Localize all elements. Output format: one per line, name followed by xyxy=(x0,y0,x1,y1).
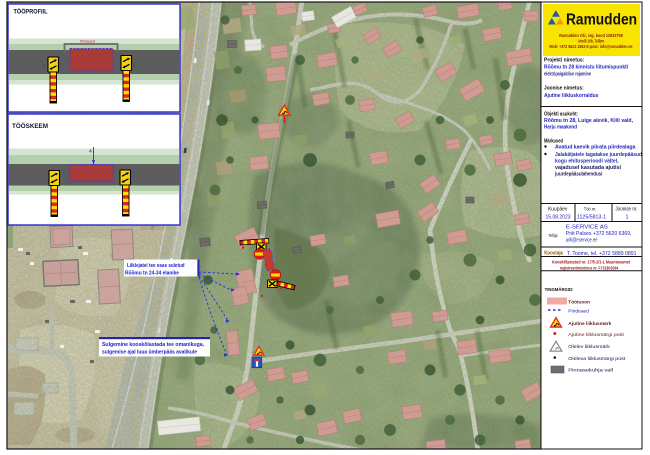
svg-text:Ajutine liikluskorraldus: Ajutine liikluskorraldus xyxy=(544,93,598,99)
svg-text:vajadusel kasutada ajutisi: vajadusel kasutada ajutisi xyxy=(555,165,622,171)
svg-text:Avatud kaevik piirata piirdeal: Avatud kaevik piirata piirdealaga xyxy=(555,145,636,151)
svg-text:Kuupäev: Kuupäev xyxy=(548,207,568,213)
svg-text:TÖÖPROFIIL: TÖÖPROFIIL xyxy=(14,9,48,16)
svg-text:Ajutine liiklusmärgi post: Ajutine liiklusmärgi post xyxy=(568,332,624,338)
svg-text:Joonise nimetus:: Joonise nimetus: xyxy=(544,86,584,92)
svg-text:Harju maakond: Harju maakond xyxy=(544,125,577,131)
svg-text:TINGMÄRGID:: TINGMÄRGID: xyxy=(545,286,574,293)
svg-text:Rõõmu tn 28 kinnistu liitumisp: Rõõmu tn 28 kinnistu liitumispunkti xyxy=(544,65,629,71)
svg-text:2,0: 2,0 xyxy=(132,64,136,68)
svg-text:Jalakäijatele tagatakse juurde: Jalakäijatele tagatakse juurdepääsud xyxy=(555,152,643,158)
svg-text:Ramudden: Ramudden xyxy=(566,12,637,29)
svg-text:Rõõmu tn 24-34 elanike: Rõõmu tn 24-34 elanike xyxy=(125,271,179,277)
svg-text:Ramudden OÜ, reg. kood 1263370: Ramudden OÜ, reg. kood 12633708 xyxy=(559,33,623,38)
svg-text:Objekti asukoht:: Objekti asukoht: xyxy=(544,112,578,118)
svg-text:Priit Palses +372 5620 6369,: Priit Palses +372 5620 6369, xyxy=(566,231,632,237)
svg-text:Tellija: Tellija xyxy=(549,233,559,238)
svg-text:Töötsoon: Töötsoon xyxy=(568,300,590,306)
svg-text:sulgemise ajal luua ümberpääs: sulgemise ajal luua ümberpääs avalikule xyxy=(102,350,197,356)
svg-text:Sulgemine kooskõlastada tee om: Sulgemine kooskõlastada tee omanikuga, xyxy=(102,342,204,348)
svg-text:Liiklejatel tee osas suletud: Liiklejatel tee osas suletud xyxy=(127,263,185,269)
svg-text:kogu ehitusperioodi vältel,: kogu ehitusperioodi vältel, xyxy=(555,159,619,165)
svg-text:2,0: 2,0 xyxy=(42,64,46,68)
svg-text:Artelli 10b, Tallinn: Artelli 10b, Tallinn xyxy=(578,39,605,44)
svg-text:elektripaigaldise rajamine: elektripaigaldise rajamine xyxy=(544,72,591,78)
svg-text:Ajutine liiklusmärk: Ajutine liiklusmärk xyxy=(568,321,611,327)
svg-text:Joonise nr.: Joonise nr. xyxy=(615,207,637,213)
svg-text:TÖÖSKEEM: TÖÖSKEEM xyxy=(12,123,48,130)
svg-text:Olelev liiklusmärk: Olelev liiklusmärk xyxy=(568,344,610,350)
svg-text:Projekti nimetus:: Projekti nimetus: xyxy=(544,58,584,64)
svg-text:Mob: +372 5623 1563 E-post: in: Mob: +372 5623 1563 E-post: info@ramudde… xyxy=(550,44,634,49)
svg-text:arili@eservice.ee: arili@eservice.ee xyxy=(566,238,598,244)
svg-text:Töö nr.: Töö nr. xyxy=(584,207,597,213)
svg-text:Kooskõlastatud nr. 17/5-2/1-1: Kooskõlastatud nr. 17/5-2/1-1 Maanteeame… xyxy=(552,260,630,266)
svg-text:juurdepääsulahendusi: juurdepääsulahendusi xyxy=(554,172,603,178)
svg-text:1125/5813-1: 1125/5813-1 xyxy=(577,215,606,221)
svg-text:Piirdeaed: Piirdeaed xyxy=(80,40,95,44)
svg-text:E-SERVICE AS: E-SERVICE AS xyxy=(566,225,608,231)
svg-text:1: 1 xyxy=(626,215,629,221)
svg-text:15.08.2023: 15.08.2023 xyxy=(546,215,571,221)
svg-text:Piirdeaed: Piirdeaed xyxy=(568,308,589,314)
svg-text:Koostaja: Koostaja xyxy=(544,251,563,257)
svg-text:Pinnasekuhja vall: Pinnasekuhja vall xyxy=(568,368,613,374)
svg-text:Rõõmu tn 28, Luige alevik, Kii: Rõõmu tn 28, Luige alevik, Kiili vald, xyxy=(544,118,633,124)
svg-text:Oleleva liiklusmärgi post: Oleleva liiklusmärgi post xyxy=(568,356,626,362)
svg-text:4: 4 xyxy=(89,149,92,155)
